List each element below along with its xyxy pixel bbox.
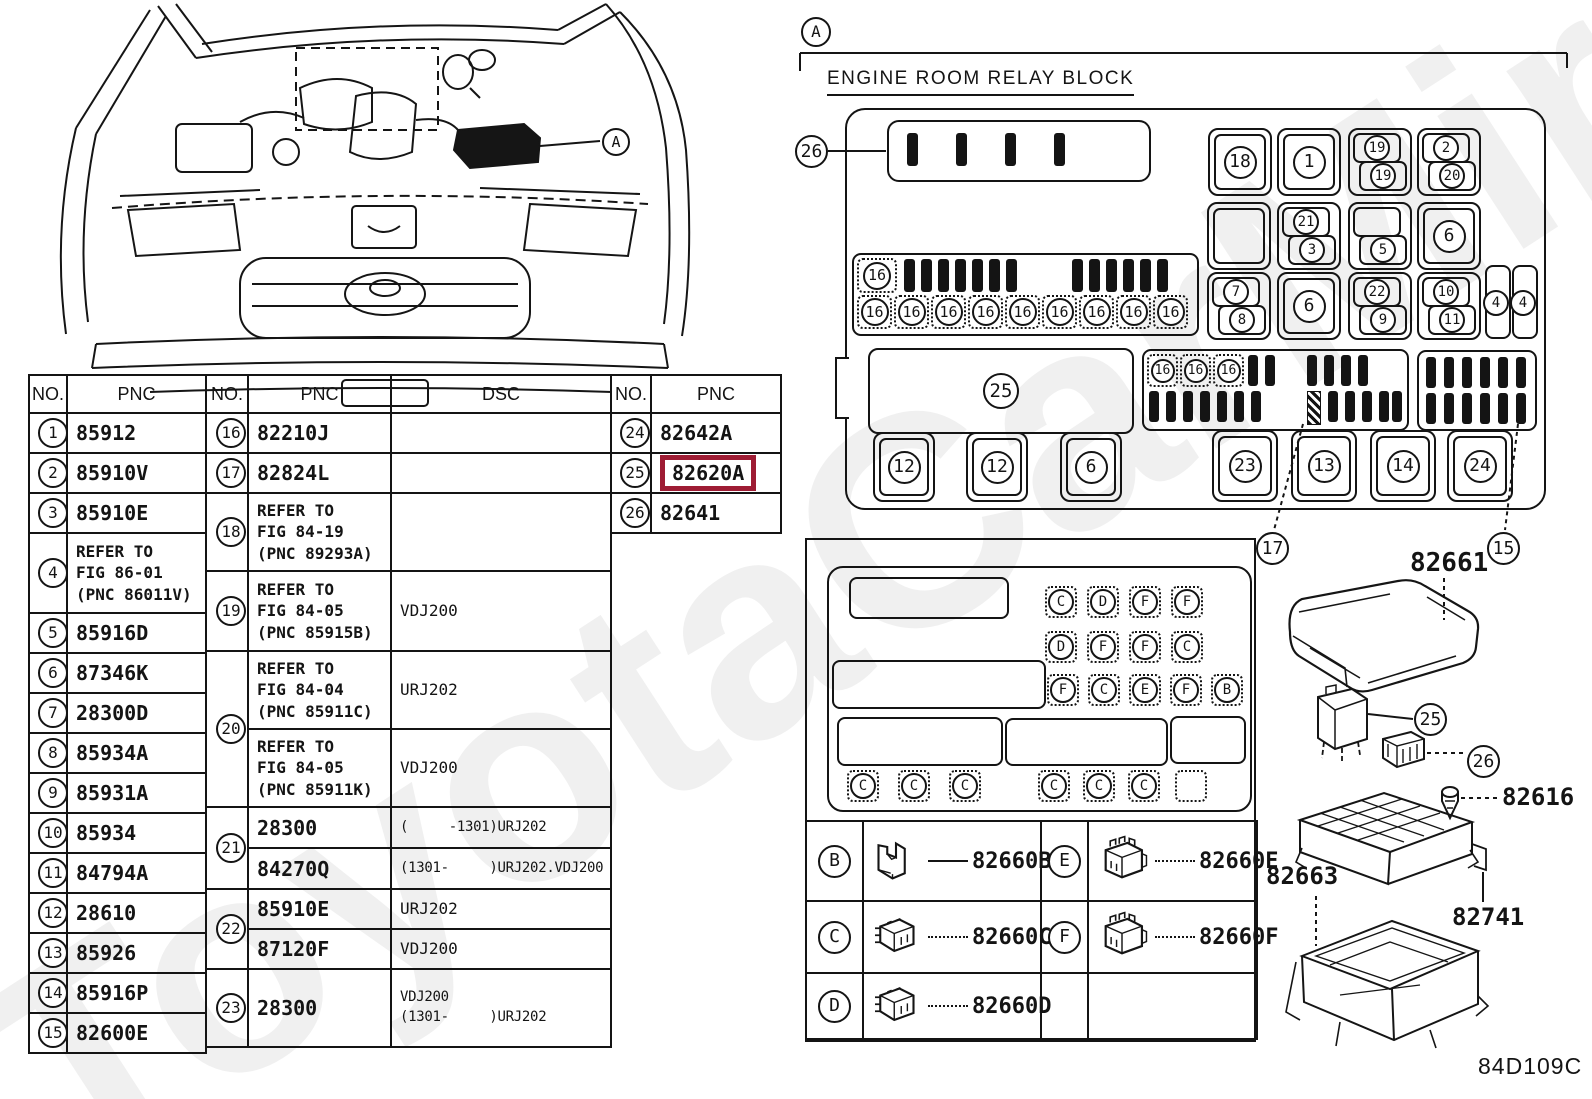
letter-slot: F (1170, 674, 1202, 706)
fuse-bar (1516, 357, 1526, 388)
dsc-cell: URJ202 (391, 889, 611, 929)
fuse-cell-16: 16 (931, 295, 966, 329)
fuse-array-right (1417, 350, 1537, 431)
part-connector-26 (1383, 732, 1424, 767)
row-no: 4 (29, 533, 67, 613)
letter-slot: C (949, 770, 981, 802)
blank-small-slot (1175, 770, 1207, 802)
relay-square-6c: 6 (1060, 432, 1122, 502)
letter-slot: C (847, 770, 879, 802)
fuse-bar (1140, 259, 1151, 292)
relay-square-7-8: 78 (1207, 272, 1271, 340)
relay-box-25: 25 (868, 348, 1134, 434)
pnc-cell[interactable]: 85912 (67, 413, 206, 453)
relay-square-19-19: 1919 (1348, 128, 1412, 196)
row-no: 22 (206, 889, 248, 969)
relay-square-6b: 6 (1277, 272, 1341, 340)
relay-square-10-11: 1011 (1417, 272, 1481, 340)
row-no: 24 (611, 413, 651, 453)
pnc-cell-highlighted[interactable]: 82620A (651, 453, 781, 493)
part-label-82663[interactable]: 82663 (1266, 862, 1338, 890)
row-no: 23 (206, 969, 248, 1047)
fuse-bar (1200, 391, 1210, 422)
relay-square-12b: 12 (966, 432, 1028, 502)
fuse-bar (1234, 391, 1244, 422)
pnc-cell[interactable]: 82824L (248, 453, 391, 493)
relay-block-notch (835, 357, 849, 419)
fuse-bar (904, 259, 915, 292)
dsc-cell: ( -1301)URJ202 (391, 807, 611, 848)
connector-part-82660C: 82660C (863, 901, 1041, 973)
col-header-no: NO. (611, 375, 651, 413)
connector-panel: C D F F D F F C F C E F B (805, 538, 1256, 1042)
letter-slot: C (1083, 770, 1115, 802)
fuse-bar (1362, 391, 1372, 422)
fuse-bar (938, 259, 949, 292)
pnc-cell[interactable]: REFER TO FIG 84-04 (PNC 85911C) (248, 651, 391, 729)
dsc-cell (391, 453, 611, 493)
callout-a-section: A (801, 17, 831, 47)
fuse-cell-16: 16 (1213, 354, 1244, 387)
fuse-bar (1324, 355, 1334, 386)
connector-part-82660F: 82660F (1088, 901, 1257, 973)
letter-slot: F (1087, 631, 1119, 663)
connector-letter-c: C (806, 901, 863, 973)
col-header-dsc: DSC (391, 375, 611, 413)
parts-table-right: NO.PNC 2482642A 2582620A 2682641 (610, 374, 782, 534)
pnc-cell[interactable]: 82641 (651, 493, 781, 533)
callout-25-side: 25 (1414, 703, 1447, 736)
part-label-82741[interactable]: 82741 (1452, 903, 1524, 931)
pnc-cell[interactable]: 28610 (67, 893, 206, 933)
dsc-cell: URJ202 (391, 651, 611, 729)
connector-part-82660D: 82660D (863, 973, 1041, 1039)
pnc-cell[interactable]: 84270Q (248, 848, 391, 889)
highlight-box: 82620A (660, 455, 756, 491)
fuse-array-middle: 16 16 16 (1142, 349, 1409, 431)
pnc-cell[interactable]: REFER TO FIG 84-19 (PNC 89293A) (248, 493, 391, 571)
letter-slot: F (1129, 586, 1161, 618)
row-no: 19 (206, 571, 248, 651)
pnc-cell[interactable]: 87120F (248, 929, 391, 969)
row-no: 11 (29, 853, 67, 893)
leader-line (928, 1005, 968, 1007)
fuse-cell-16: 16 (1153, 295, 1188, 329)
fuse-bar (1251, 391, 1261, 422)
parts-table-middle: NO.PNCDSC 1682210J 1782824L 18REFER TO F… (205, 374, 612, 1048)
fuse-bar (1379, 391, 1389, 422)
fuse-bar (1345, 391, 1355, 422)
dsc-cell: (1301- )URJ202.VDJ200 (391, 848, 611, 889)
fuse-cell-16: 16 (894, 295, 929, 329)
dsc-cell: VDJ200 (391, 729, 611, 807)
pnc-cell[interactable]: 87346K (67, 653, 206, 693)
connector-letter-d: D (806, 973, 863, 1039)
pnc-cell[interactable]: 82600E (67, 1013, 206, 1053)
callout-a-illustration: A (602, 128, 630, 156)
connector-letter-e: E (1041, 821, 1088, 901)
callout-15: 15 (1487, 532, 1520, 565)
fuse-bar (956, 133, 967, 166)
leader-line (928, 936, 968, 938)
fuse-bar (1217, 391, 1227, 422)
row-no: 12 (29, 893, 67, 933)
letter-slot: D (1045, 631, 1077, 663)
fuse-bar (1183, 391, 1193, 422)
fuse-cell-16: 16 (1079, 295, 1114, 329)
fuse-bar (1123, 259, 1134, 292)
fuse-bar (1426, 393, 1436, 424)
row-no: 2 (29, 453, 67, 493)
relay-square-5: 5 (1348, 202, 1412, 270)
fuse-bar (1054, 133, 1065, 166)
letter-slot: F (1047, 674, 1079, 706)
connector-e-icon (1093, 835, 1151, 887)
row-no: 1 (29, 413, 67, 453)
pnc-cell[interactable]: 28300 (248, 807, 391, 848)
pnc-cell[interactable]: REFER TO FIG 84-05 (PNC 85911K) (248, 729, 391, 807)
row-no: 8 (29, 733, 67, 773)
blank-slot (1170, 716, 1246, 764)
pnc-cell[interactable]: 82642A (651, 413, 781, 453)
fuse-bar (1444, 393, 1454, 424)
row-no: 26 (611, 493, 651, 533)
letter-slot: F (1171, 586, 1203, 618)
pnc-cell[interactable]: 85926 (67, 933, 206, 973)
fuse-bar (1265, 355, 1275, 386)
col-header-pnc: PNC (248, 375, 391, 413)
fuse-strip-26 (887, 120, 1151, 182)
letter-slot: C (898, 770, 930, 802)
relay-square-21-3: 213 (1277, 202, 1341, 270)
letter-slot: C (1045, 586, 1077, 618)
row-no: 9 (29, 773, 67, 813)
part-label-82661[interactable]: 82661 (1410, 548, 1488, 578)
pnc-cell[interactable]: 85916D (67, 613, 206, 653)
fuse-bar (1516, 393, 1526, 424)
callout-17: 17 (1256, 532, 1289, 565)
relay-square-12a: 12 (873, 432, 935, 502)
pnc-cell[interactable]: 85934A (67, 733, 206, 773)
relay-block-title: ENGINE ROOM RELAY BLOCK (827, 68, 1134, 96)
dsc-cell (391, 493, 611, 571)
fuse-bar (1341, 355, 1351, 386)
row-no: 18 (206, 493, 248, 571)
connector-part-82660E: 82660E (1088, 821, 1257, 901)
letter-slot: F (1129, 631, 1161, 663)
fuse-bar (1328, 391, 1338, 422)
row-no: 6 (29, 653, 67, 693)
fuse-bar-hatched-17 (1307, 391, 1321, 425)
leader-line (928, 860, 968, 862)
parts-table-left: NO.PNC 185912 285910V 385910E 4REFER TO … (28, 374, 207, 1054)
fuse-bar (1498, 357, 1508, 388)
connector-d-icon (868, 981, 924, 1031)
col-header-pnc: PNC (67, 375, 206, 413)
letter-slot: C (1088, 674, 1120, 706)
fuse-strip-16: 16 16 16 16 16 16 16 16 16 16 (852, 253, 1199, 336)
letter-slot: C (1128, 770, 1160, 802)
fuse-bar (1072, 259, 1083, 292)
letter-slot: C (1038, 770, 1070, 802)
fuse-bar (1166, 391, 1176, 422)
pnc-cell[interactable]: REFER TO FIG 84-05 (PNC 85915B) (248, 571, 391, 651)
letter-slot: B (1211, 674, 1243, 706)
fuse-cell-16: 16 (857, 295, 892, 329)
fuse-bar (1006, 259, 1017, 292)
fuse-bar (1426, 357, 1436, 388)
pnc-cell[interactable]: 28300D (67, 693, 206, 733)
col-header-no: NO. (29, 375, 67, 413)
pnc-cell[interactable]: 85910E (248, 889, 391, 929)
letter-slot: E (1129, 674, 1161, 706)
relay-num-4b: 4 (1510, 290, 1536, 316)
row-no: 14 (29, 973, 67, 1013)
fuse-bar (989, 259, 1000, 292)
col-header-pnc: PNC (651, 375, 781, 413)
engine-bay-illustration (61, 4, 689, 406)
letter-slot: C (1171, 631, 1203, 663)
dsc-cell: VDJ200 (391, 571, 611, 651)
pnc-cell[interactable]: 84794A (67, 853, 206, 893)
fuse-cell-16: 16 (1180, 354, 1211, 387)
relay-square-18: 18 (1208, 128, 1272, 196)
col-header-no: NO. (206, 375, 248, 413)
fuse-bar (1444, 357, 1454, 388)
row-no: 3 (29, 493, 67, 533)
row-no: 13 (29, 933, 67, 973)
relay-square-14: 14 (1370, 430, 1436, 502)
fuse-bar (1149, 391, 1159, 422)
part-relay-25 (1318, 685, 1367, 762)
connector-f-icon (1093, 911, 1151, 963)
part-label-82616[interactable]: 82616 (1502, 783, 1574, 811)
row-no: 15 (29, 1013, 67, 1053)
fuse-bar (1462, 393, 1472, 424)
connector-part-82660B: 82660B (863, 821, 1041, 901)
blank-slot (837, 717, 1003, 766)
figure-code: 84D109C (1478, 1053, 1582, 1080)
fuse-bar (1392, 391, 1402, 422)
pnc-cell[interactable]: 85931A (67, 773, 206, 813)
pnc-cell[interactable]: REFER TO FIG 86-01 (PNC 86011V) (67, 533, 206, 613)
dsc-cell: VDJ200 (1301- )URJ202 (391, 969, 611, 1047)
row-no: 25 (611, 453, 651, 493)
fuse-bar (1358, 355, 1368, 386)
dsc-cell: VDJ200 (391, 929, 611, 969)
row-no: 17 (206, 453, 248, 493)
row-no: 7 (29, 693, 67, 733)
fuse-bar (1498, 393, 1508, 424)
relay-square-13: 13 (1291, 430, 1357, 502)
fuse-bar (1248, 355, 1258, 386)
dsc-cell (391, 413, 611, 453)
row-no: 21 (206, 807, 248, 889)
relay-square-1: 1 (1277, 128, 1341, 196)
fuse-cell-16: 16 (1005, 295, 1040, 329)
fuse-cell-16: 16 (1147, 354, 1178, 387)
relay-square-2-20: 220 (1417, 128, 1481, 196)
blank-slot (1005, 718, 1168, 766)
relay-block-location-fill (454, 124, 540, 168)
fuse-bar (1005, 133, 1016, 166)
pnc-cell[interactable]: 85934 (67, 813, 206, 853)
leader-line (1155, 860, 1195, 862)
fuse-bar (1089, 259, 1100, 292)
part-cover-82661 (1290, 580, 1479, 691)
row-no: 16 (206, 413, 248, 453)
relay-square-22-9: 229 (1348, 272, 1412, 340)
parts-catalog-page: ToyotaCarMir (0, 0, 1592, 1099)
fuse-bar (972, 259, 983, 292)
pnc-cell[interactable]: 85916P (67, 973, 206, 1013)
blank-slot (849, 577, 1009, 619)
fuse-bar (1462, 357, 1472, 388)
connector-letter-b: B (806, 821, 863, 901)
part-tray-82663 (1286, 921, 1488, 1048)
fuse-cell-16: 16 (1042, 295, 1077, 329)
row-no: 10 (29, 813, 67, 853)
pnc-cell[interactable]: 82210J (248, 413, 391, 453)
fuse-bar (955, 259, 966, 292)
letter-slot: D (1087, 586, 1119, 618)
fuse-bar (1480, 357, 1490, 388)
fuse-cell-16: 16 (968, 295, 1003, 329)
relay-square-24: 24 (1447, 430, 1513, 502)
fuse-bar (1307, 355, 1317, 386)
row-no: 5 (29, 613, 67, 653)
row-no: 20 (206, 651, 248, 807)
relay-square-6: 6 (1417, 202, 1481, 270)
pnc-cell[interactable]: 85910V (67, 453, 206, 493)
connector-b-icon (868, 836, 924, 886)
leader-line (1155, 936, 1195, 938)
relay-num-4a: 4 (1483, 290, 1509, 316)
blank-slot (832, 660, 1046, 709)
connector-block-outline: C D F F D F F C F C E F B (827, 566, 1252, 812)
callout-26-side: 26 (1467, 745, 1500, 778)
relay-square-23: 23 (1212, 430, 1278, 502)
pnc-cell[interactable]: 28300 (248, 969, 391, 1047)
fuse-bar (1480, 393, 1490, 424)
connector-letter-f: F (1041, 901, 1088, 973)
fuse-cell-16: 16 (857, 258, 897, 293)
fuse-bar (1106, 259, 1117, 292)
relay-square-empty (1207, 202, 1271, 270)
empty-cell (1088, 973, 1257, 1039)
fuse-bar (907, 133, 918, 166)
callout-26: 26 (795, 135, 828, 168)
connector-key-table: B 82660B E 82660E C 82660C F 82660F (805, 820, 1258, 1040)
fuse-bar (921, 259, 932, 292)
connector-c-icon (868, 912, 924, 962)
fuse-bar (1157, 259, 1168, 292)
pnc-cell[interactable]: 85910E (67, 493, 206, 533)
fuse-cell-16: 16 (1116, 295, 1151, 329)
